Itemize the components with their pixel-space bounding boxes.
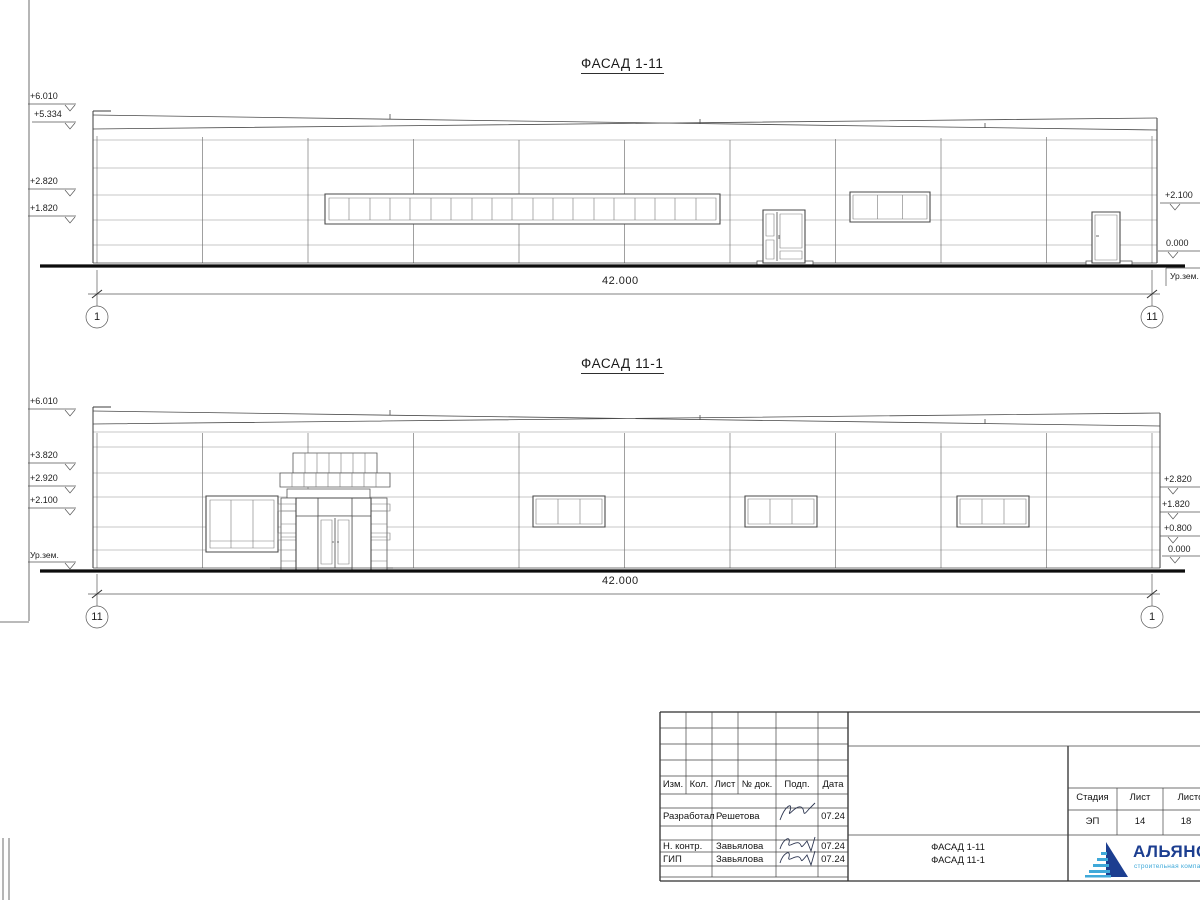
- axis-bubble-label: 11: [1141, 306, 1163, 328]
- elevation-label: +0.800: [1164, 524, 1192, 533]
- ground-level-label: Ур.зем.: [1170, 272, 1199, 281]
- sheets-value: 18: [1163, 817, 1200, 827]
- facade-bottom-entrance-portal: [270, 453, 393, 570]
- titleblock-name: Решетова: [716, 812, 760, 822]
- titleblock-col-list: Лист: [712, 780, 738, 790]
- ground-level-label: Ур.зем.: [30, 551, 59, 560]
- dimension-label: 42.000: [602, 276, 639, 287]
- elevation-label: +3.820: [30, 451, 58, 460]
- elevation-label: +5.334: [34, 110, 62, 119]
- facade-top-title: ФАСАД 1-11: [581, 57, 664, 74]
- axis-bubble-label: 1: [1141, 606, 1163, 628]
- titleblock-col-izm: Изм.: [660, 780, 686, 790]
- stage-value: ЭП: [1068, 817, 1117, 827]
- titleblock-role: Н. контр.: [663, 842, 702, 852]
- facade-bottom-title: ФАСАД 11-1: [581, 357, 664, 374]
- sheet-frame: [0, 0, 29, 900]
- doc-title-line1: ФАСАД 1-11: [848, 843, 1068, 853]
- elevation-label: +2.820: [1164, 475, 1192, 484]
- axis-bubble-label: 1: [86, 306, 108, 328]
- facade-top-ribbon-window: [325, 194, 720, 224]
- elevation-label: +2.100: [1165, 191, 1193, 200]
- titleblock-col-podp: Подп.: [776, 780, 818, 790]
- elevation-marks-bottom: [28, 409, 1200, 569]
- titleblock-col-data: Дата: [818, 780, 848, 790]
- titleblock-date: 07.24: [818, 855, 848, 865]
- titleblock-role: ГИП: [663, 855, 682, 865]
- company-logo-text: АЛЬЯНС: [1133, 843, 1200, 860]
- elevation-label: +1.820: [30, 204, 58, 213]
- axis-bubble-label: 11: [86, 606, 108, 628]
- logo-pyramid-icon: [1085, 842, 1128, 878]
- facade-top-building: [93, 111, 1157, 263]
- titleblock-col-ndok: № док.: [738, 780, 776, 790]
- elevation-label: +1.820: [1162, 500, 1190, 509]
- titleblock-col-kol: Кол.: [686, 780, 712, 790]
- company-logo-subtitle: строительная компания: [1134, 864, 1200, 871]
- titleblock-role: Разработал: [663, 812, 715, 822]
- facade-top-window: [850, 192, 930, 222]
- elevation-label: +2.100: [30, 496, 58, 505]
- signatures: [780, 803, 815, 865]
- sheet-header: Лист: [1117, 793, 1163, 803]
- sheet-value: 14: [1117, 817, 1163, 827]
- dimension-label: 42.000: [602, 576, 639, 587]
- doc-title-line2: ФАСАД 11-1: [848, 856, 1068, 866]
- stage-header: Стадия: [1068, 793, 1117, 803]
- titleblock-date: 07.24: [818, 842, 848, 852]
- elevation-label: 0.000: [1168, 545, 1191, 554]
- titleblock-date: 07.24: [818, 812, 848, 822]
- facade-bottom-windows: [533, 496, 1029, 527]
- titleblock-name: Завьялова: [716, 855, 763, 865]
- sheets-header: Листов: [1163, 793, 1200, 803]
- titleblock-name: Завьялова: [716, 842, 763, 852]
- facade-linework: [0, 0, 1200, 900]
- elevation-label: +2.820: [30, 177, 58, 186]
- facade-bottom-window-large: [206, 496, 278, 552]
- elevation-label: +6.010: [30, 397, 58, 406]
- elevation-label: +2.920: [30, 474, 58, 483]
- drawing-sheet: ФАСАД 1-11 +6.010 +5.334 +2.820 +1.820 +…: [0, 0, 1200, 900]
- elevation-label: +6.010: [30, 92, 58, 101]
- facade-top-door-double: [757, 210, 813, 265]
- elevation-label: 0.000: [1166, 239, 1189, 248]
